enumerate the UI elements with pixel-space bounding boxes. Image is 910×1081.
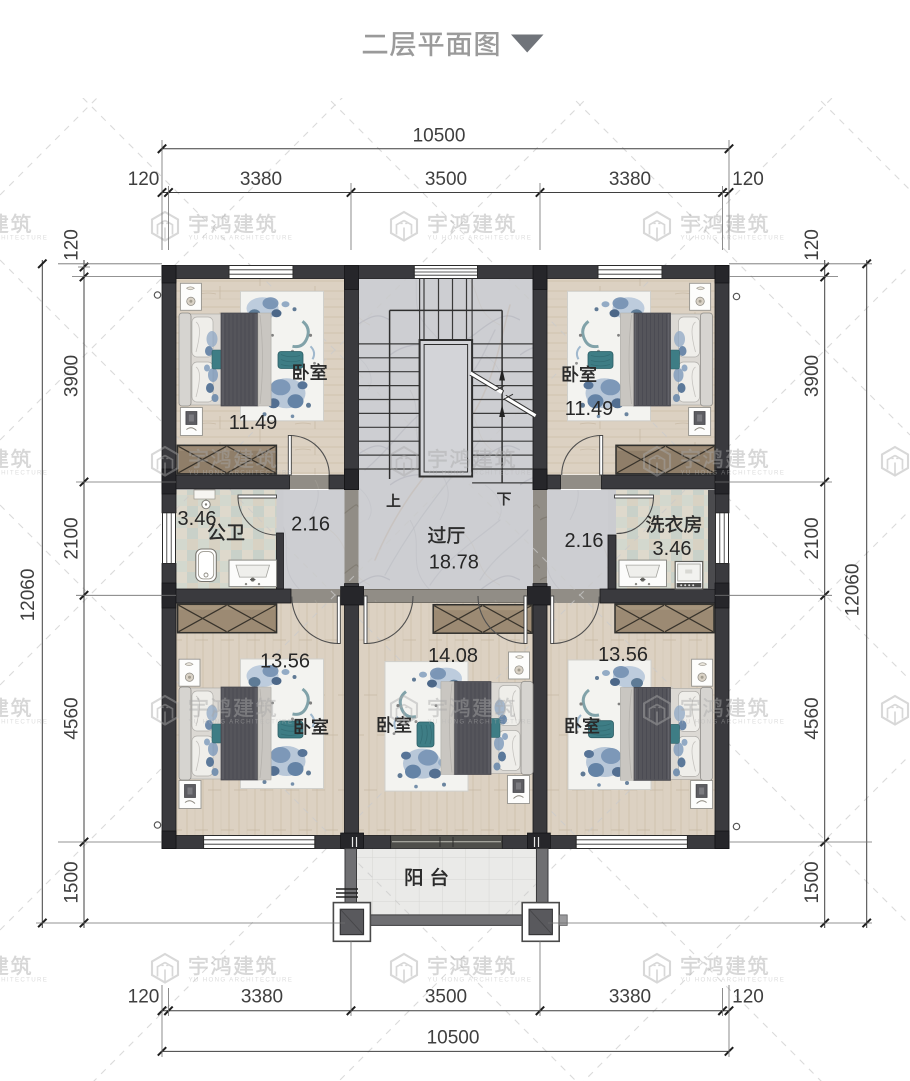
svg-text:1500: 1500 [802,861,823,903]
svg-text:11.49: 11.49 [229,412,278,434]
svg-text:2.16: 2.16 [565,530,604,552]
svg-text:YU HONG ARCHITECTURE: YU HONG ARCHITECTURE [189,977,294,984]
svg-text:18.78: 18.78 [429,552,479,574]
svg-text:2100: 2100 [802,517,823,559]
svg-text:120: 120 [732,987,764,1008]
svg-text:YU HONG ARCHITECTURE: YU HONG ARCHITECTURE [189,235,294,242]
svg-text:3.46: 3.46 [178,508,217,530]
svg-text:12060: 12060 [18,569,39,622]
svg-text:YU HONG ARCHITECTURE: YU HONG ARCHITECTURE [189,719,294,726]
svg-text:YU HONG ARCHITECTURE: YU HONG ARCHITECTURE [0,470,48,477]
svg-text:YU HONG ARCHITECTURE: YU HONG ARCHITECTURE [428,977,533,984]
svg-text:2.16: 2.16 [291,513,330,535]
svg-text:3500: 3500 [425,987,467,1008]
svg-text:3380: 3380 [241,987,283,1008]
svg-text:3500: 3500 [425,169,467,190]
svg-text:120: 120 [128,987,160,1008]
svg-text:120: 120 [128,169,160,190]
svg-text:YU HONG ARCHITECTURE: YU HONG ARCHITECTURE [428,719,533,726]
svg-text:YU HONG ARCHITECTURE: YU HONG ARCHITECTURE [428,235,533,242]
svg-text:YU HONG ARCHITECTURE: YU HONG ARCHITECTURE [681,719,786,726]
svg-text:13.56: 13.56 [598,644,648,666]
svg-text:120: 120 [732,169,764,190]
svg-text:14.08: 14.08 [428,645,478,667]
svg-text:YU HONG ARCHITECTURE: YU HONG ARCHITECTURE [681,470,786,477]
svg-text:12060: 12060 [843,564,864,617]
svg-text:3900: 3900 [62,355,83,397]
svg-text:3380: 3380 [609,987,651,1008]
svg-text:YU HONG ARCHITECTURE: YU HONG ARCHITECTURE [681,977,786,984]
svg-text:11.49: 11.49 [565,398,614,420]
svg-text:3900: 3900 [802,355,823,397]
svg-text:YU HONG ARCHITECTURE: YU HONG ARCHITECTURE [681,235,786,242]
svg-text:YU HONG ARCHITECTURE: YU HONG ARCHITECTURE [189,470,294,477]
svg-text:YU HONG ARCHITECTURE: YU HONG ARCHITECTURE [0,235,48,242]
svg-text:120: 120 [62,229,83,261]
svg-text:4560: 4560 [802,697,823,739]
svg-text:1500: 1500 [62,861,83,903]
svg-text:120: 120 [802,229,823,261]
svg-text:13.56: 13.56 [260,651,310,673]
svg-text:3380: 3380 [609,169,651,190]
svg-text:4560: 4560 [62,697,83,739]
svg-text:2100: 2100 [62,517,83,559]
svg-text:YU HONG ARCHITECTURE: YU HONG ARCHITECTURE [0,719,48,726]
svg-text:YU HONG ARCHITECTURE: YU HONG ARCHITECTURE [0,977,48,984]
svg-text:YU HONG ARCHITECTURE: YU HONG ARCHITECTURE [428,470,533,477]
svg-text:10500: 10500 [427,1028,480,1049]
svg-text:3380: 3380 [240,169,282,190]
svg-text:10500: 10500 [413,126,466,147]
svg-text:3.46: 3.46 [653,538,692,560]
